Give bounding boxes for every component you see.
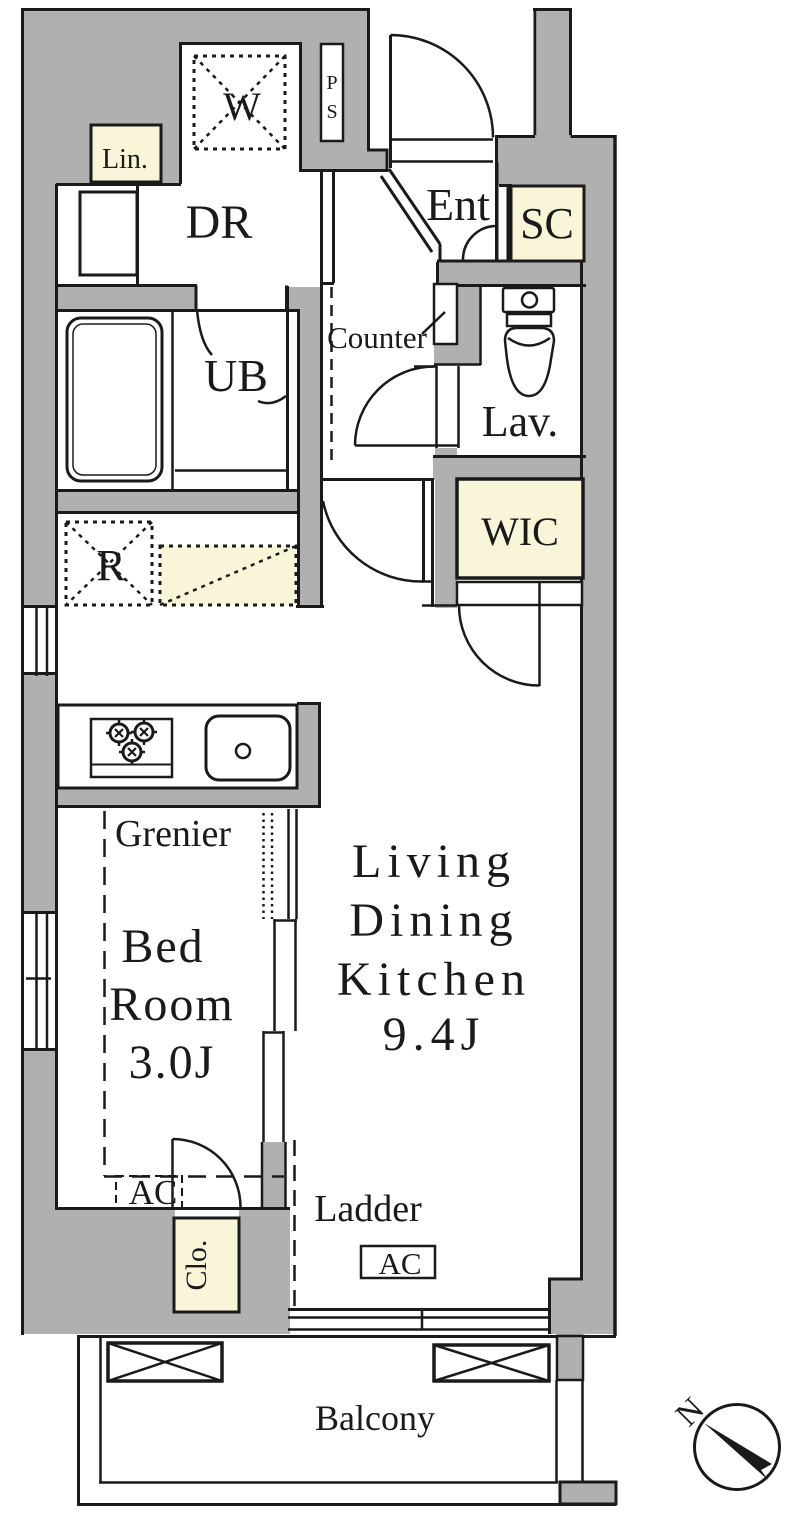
svg-text:Ladder: Ladder xyxy=(314,1188,422,1230)
svg-text:Room: Room xyxy=(109,978,234,1031)
svg-text:P: P xyxy=(326,72,337,94)
svg-text:Lav.: Lav. xyxy=(482,397,559,446)
svg-text:AC: AC xyxy=(378,1246,421,1281)
svg-text:AC: AC xyxy=(129,1173,178,1212)
svg-text:S: S xyxy=(326,101,337,123)
svg-text:WIC: WIC xyxy=(481,509,559,554)
svg-text:Kitchen: Kitchen xyxy=(337,953,531,1006)
svg-text:SC: SC xyxy=(520,199,574,248)
svg-text:Living: Living xyxy=(352,835,516,888)
svg-text:Ent: Ent xyxy=(426,179,490,230)
svg-text:Dining: Dining xyxy=(349,894,518,947)
svg-text:Balcony: Balcony xyxy=(315,1398,435,1438)
svg-text:Bed: Bed xyxy=(121,920,204,973)
svg-text:Grenier: Grenier xyxy=(115,813,231,855)
svg-text:Lin.: Lin. xyxy=(102,144,148,175)
svg-text:9.4J: 9.4J xyxy=(383,1008,486,1061)
svg-text:R: R xyxy=(96,541,126,590)
svg-text:3.0J: 3.0J xyxy=(129,1036,216,1089)
svg-text:Counter: Counter xyxy=(327,320,428,355)
svg-text:DR: DR xyxy=(186,196,253,249)
svg-text:Clo.: Clo. xyxy=(180,1240,213,1291)
svg-text:W: W xyxy=(223,84,261,129)
svg-text:UB: UB xyxy=(204,350,268,401)
